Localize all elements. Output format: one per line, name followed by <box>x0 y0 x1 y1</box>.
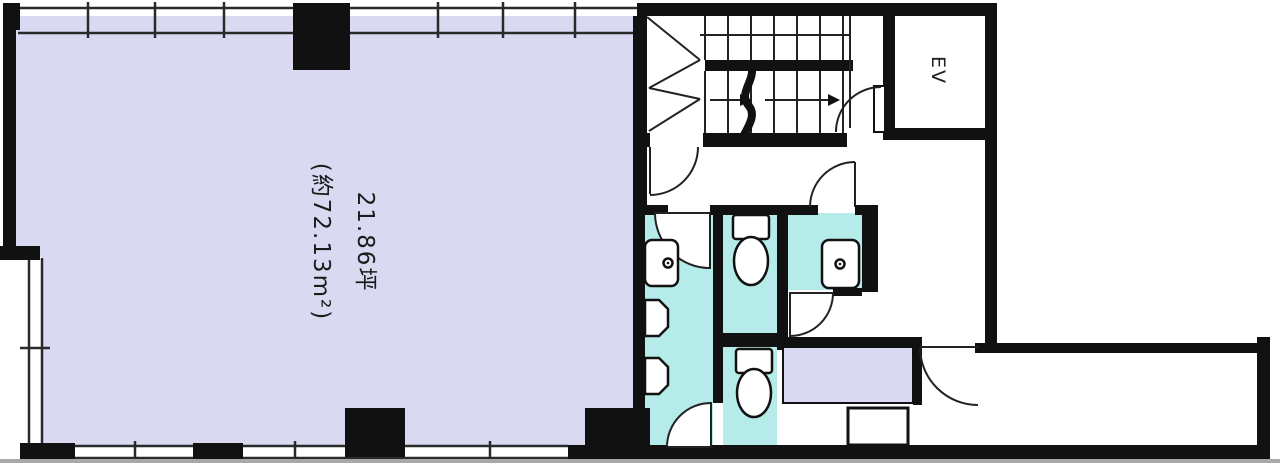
floor-plan: 21.86坪 (約72.13m²) EV <box>0 0 1280 465</box>
toilet-icon <box>733 215 769 285</box>
winder-treads <box>647 17 700 131</box>
floor-plan-drawing <box>0 0 1280 465</box>
upper-run-treads <box>700 16 850 60</box>
sink-icon <box>645 240 678 286</box>
urinal-icon <box>645 300 668 336</box>
sink-icon <box>822 240 859 288</box>
area-label-tsubo: 21.86坪 <box>343 150 387 334</box>
door-right-washroom <box>810 162 855 207</box>
counter <box>783 347 913 403</box>
door-annex-strip <box>920 347 978 405</box>
toilet-icon <box>736 349 772 417</box>
elevator-label: EV <box>927 56 949 85</box>
door-washroom-rear <box>790 293 833 336</box>
urinal-icon <box>645 358 668 394</box>
lower-run-treads <box>705 71 843 133</box>
area-label-sqm: (約72.13m²) <box>299 150 343 334</box>
door-corridor <box>650 147 698 195</box>
area-label: 21.86坪 (約72.13m²) <box>299 150 387 334</box>
baseline <box>0 459 1280 463</box>
stair-divider-wall <box>705 60 853 71</box>
staircase <box>647 16 853 135</box>
